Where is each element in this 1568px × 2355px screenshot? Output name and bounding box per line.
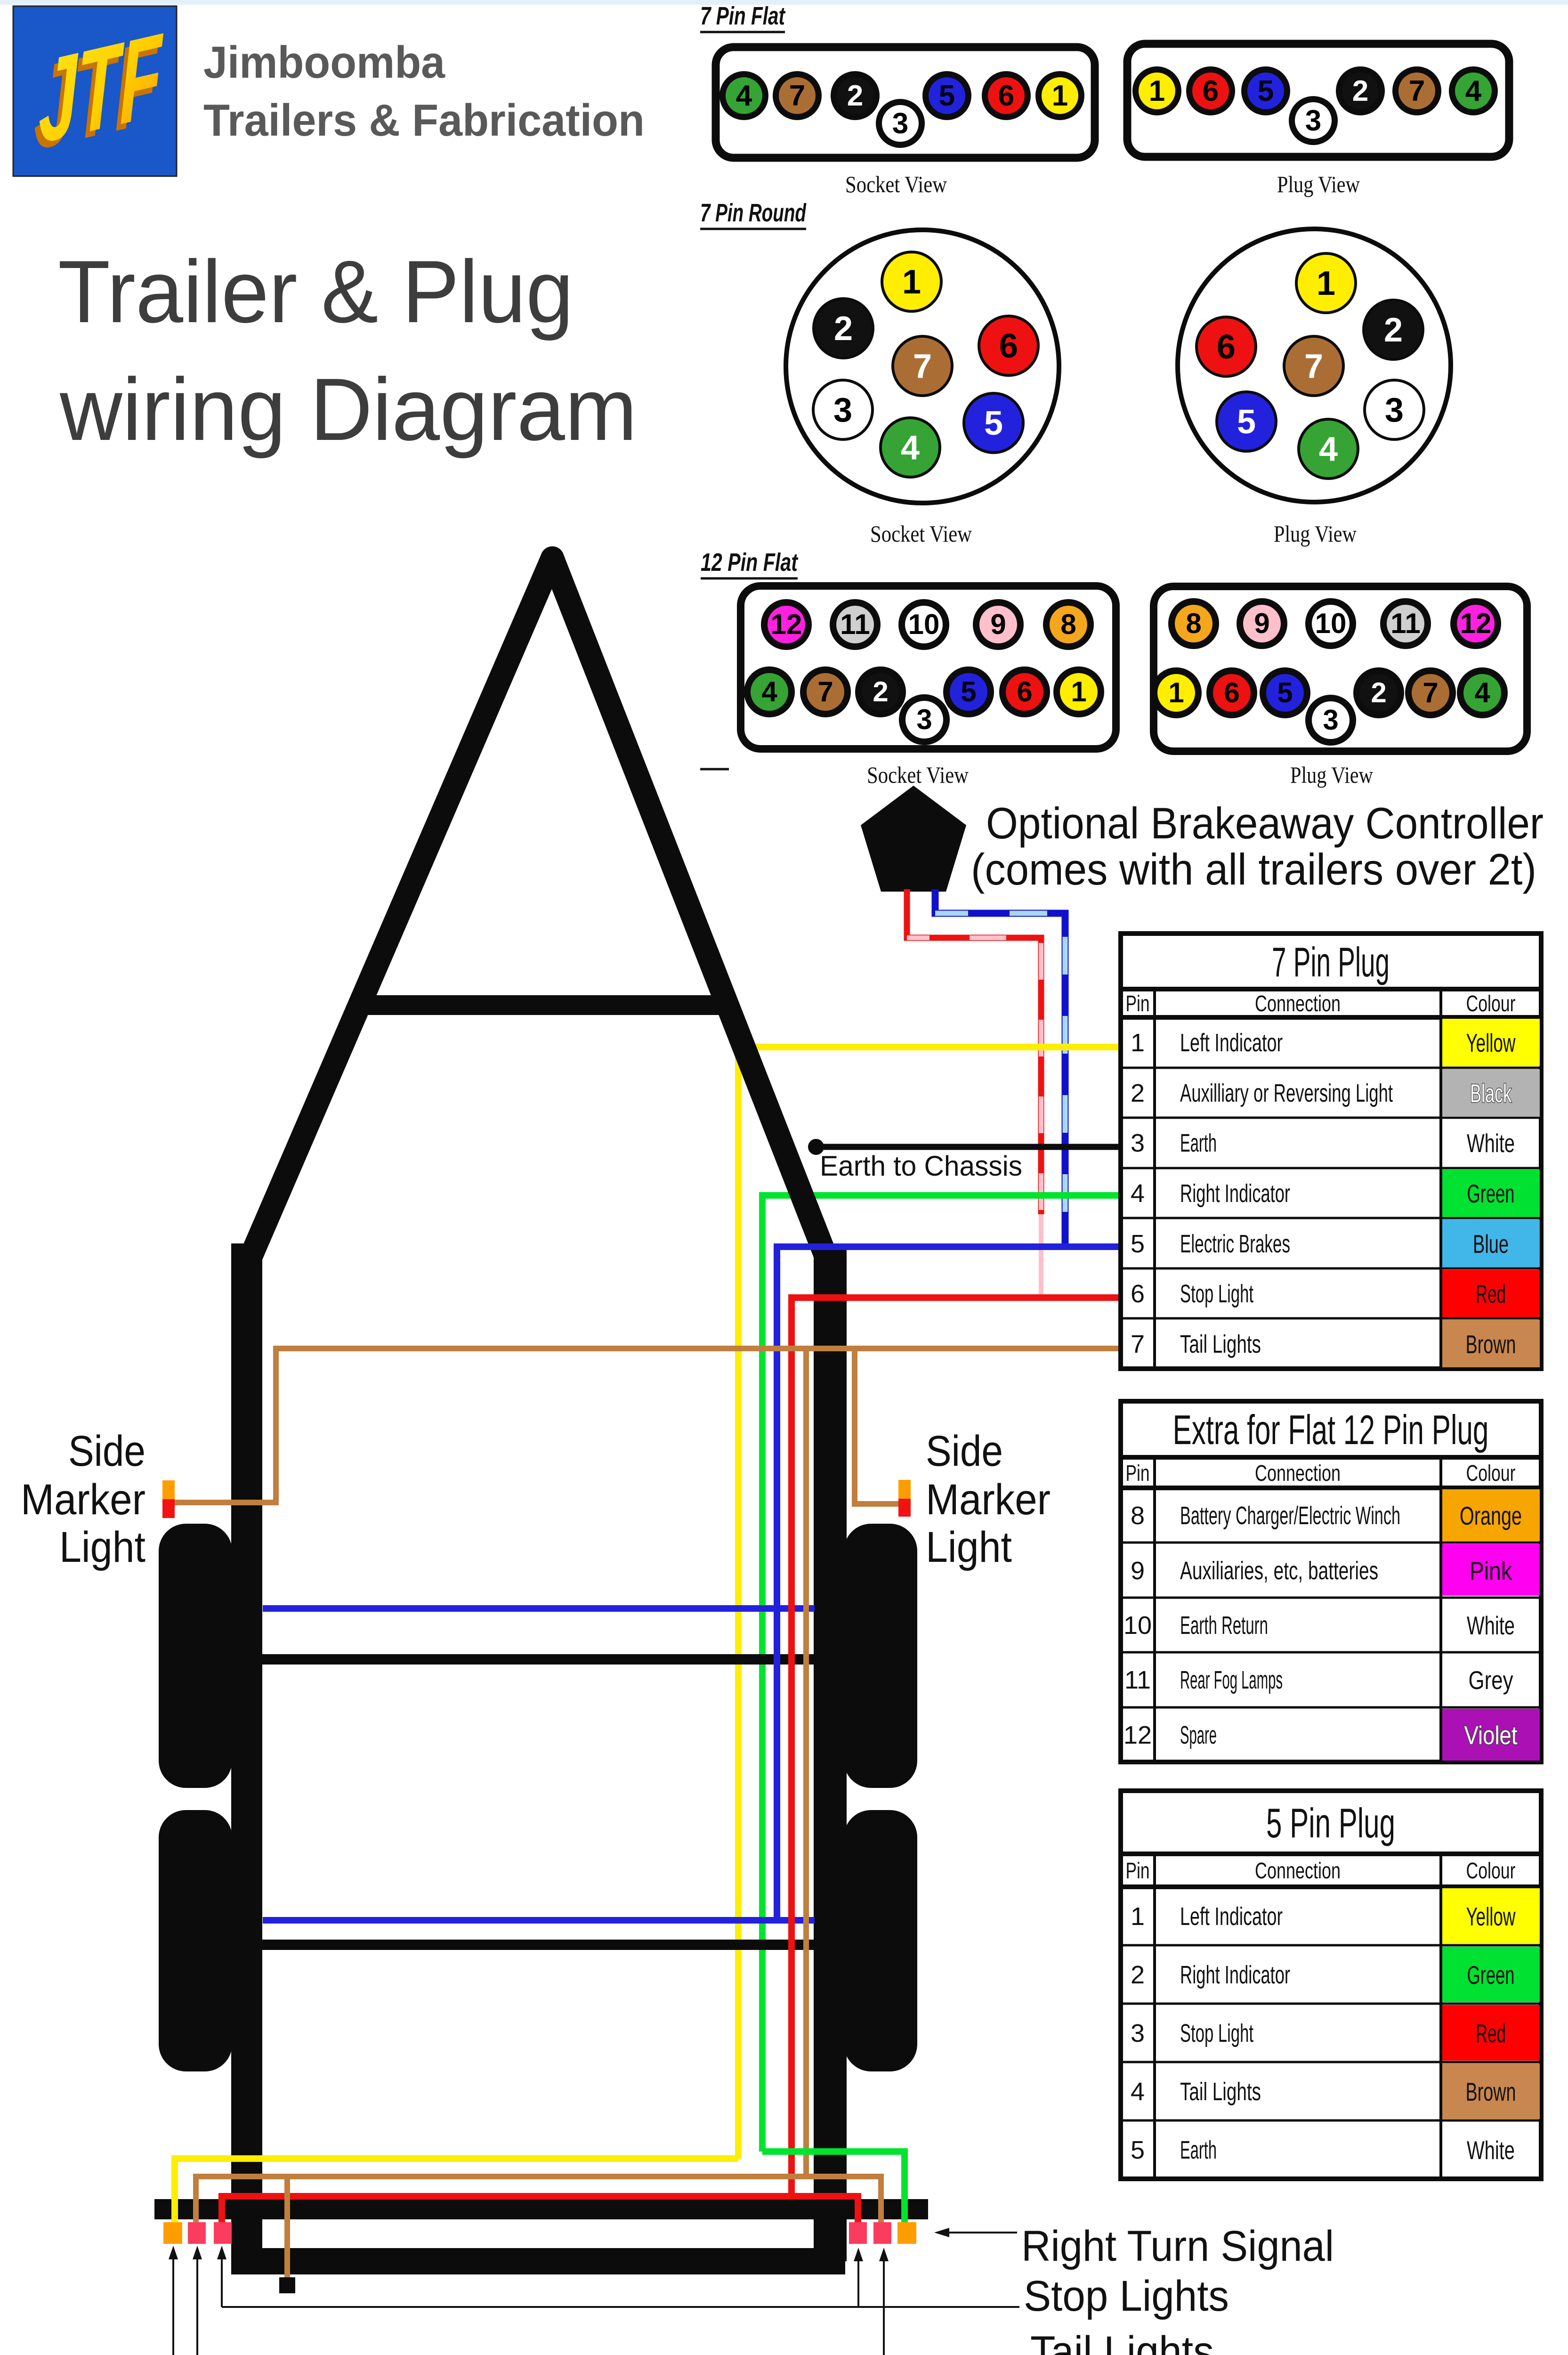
svg-text:Left Indicator: Left Indicator bbox=[1180, 1029, 1283, 1057]
svg-text:5: 5 bbox=[984, 405, 1003, 442]
svg-text:3: 3 bbox=[1323, 704, 1338, 736]
svg-text:Pin: Pin bbox=[1126, 991, 1150, 1016]
svg-text:4: 4 bbox=[1465, 75, 1482, 107]
svg-text:Green: Green bbox=[1467, 1960, 1515, 1990]
svg-text:Grey: Grey bbox=[1469, 1665, 1513, 1695]
svg-text:7 Pin Round: 7 Pin Round bbox=[700, 199, 807, 227]
svg-text:5: 5 bbox=[1237, 403, 1256, 441]
svg-text:Trailer & Plug: Trailer & Plug bbox=[58, 242, 574, 341]
svg-text:5: 5 bbox=[1277, 677, 1293, 708]
svg-text:Plug View: Plug View bbox=[1274, 520, 1357, 547]
svg-text:White: White bbox=[1467, 2136, 1515, 2165]
svg-text:Pin: Pin bbox=[1126, 1461, 1150, 1486]
svg-text:Earth: Earth bbox=[1180, 2136, 1217, 2164]
svg-text:7 Pin Plug: 7 Pin Plug bbox=[1272, 939, 1390, 985]
svg-text:7: 7 bbox=[1423, 677, 1438, 708]
svg-text:11: 11 bbox=[1390, 608, 1420, 639]
svg-text:Electric Brakes: Electric Brakes bbox=[1180, 1230, 1290, 1258]
svg-text:7: 7 bbox=[789, 80, 805, 112]
svg-text:3: 3 bbox=[833, 391, 852, 429]
svg-text:8: 8 bbox=[1186, 608, 1201, 639]
svg-text:Rear Fog Lamps: Rear Fog Lamps bbox=[1180, 1666, 1283, 1694]
svg-text:1: 1 bbox=[1149, 75, 1165, 107]
svg-text:Auxilliary or Reversing Light: Auxilliary or Reversing Light bbox=[1180, 1079, 1393, 1107]
svg-text:6: 6 bbox=[1017, 676, 1032, 707]
svg-text:10: 10 bbox=[1315, 608, 1347, 639]
svg-text:4: 4 bbox=[1319, 430, 1338, 468]
svg-text:3: 3 bbox=[1131, 1129, 1145, 1157]
svg-text:4: 4 bbox=[1131, 2078, 1145, 2106]
svg-text:Connection: Connection bbox=[1255, 991, 1341, 1016]
svg-text:Socket View: Socket View bbox=[870, 520, 972, 547]
svg-text:5: 5 bbox=[1131, 2136, 1145, 2164]
svg-text:Stop Light: Stop Light bbox=[1180, 1280, 1253, 1308]
svg-text:2: 2 bbox=[834, 310, 853, 348]
svg-text:Light: Light bbox=[926, 1523, 1012, 1571]
svg-text:1: 1 bbox=[1168, 677, 1184, 708]
svg-text:4: 4 bbox=[1131, 1179, 1145, 1208]
svg-text:Green: Green bbox=[1467, 1179, 1515, 1208]
svg-text:9: 9 bbox=[1254, 608, 1269, 639]
svg-text:2: 2 bbox=[1384, 311, 1403, 349]
svg-text:Plug View: Plug View bbox=[1277, 171, 1360, 197]
svg-text:Yellow: Yellow bbox=[1466, 1028, 1516, 1057]
svg-text:6: 6 bbox=[999, 327, 1018, 365]
svg-text:1: 1 bbox=[1071, 676, 1086, 707]
svg-text:Right Indicator: Right Indicator bbox=[1180, 1179, 1290, 1208]
svg-text:Red: Red bbox=[1476, 2019, 1506, 2048]
svg-text:Marker: Marker bbox=[926, 1476, 1051, 1524]
svg-text:7 Pin Flat: 7 Pin Flat bbox=[700, 2, 786, 30]
svg-text:Pin: Pin bbox=[1126, 1859, 1150, 1884]
svg-text:(comes with all trailers over: (comes with all trailers over 2t) bbox=[971, 845, 1536, 894]
svg-text:Optional Brakeaway Controller: Optional Brakeaway Controller bbox=[986, 798, 1544, 848]
svg-text:Connection: Connection bbox=[1255, 1461, 1341, 1486]
svg-text:4: 4 bbox=[901, 429, 920, 467]
svg-text:4: 4 bbox=[736, 80, 752, 112]
svg-text:Colour: Colour bbox=[1466, 991, 1516, 1016]
svg-text:2: 2 bbox=[873, 676, 888, 707]
svg-text:5: 5 bbox=[1131, 1230, 1145, 1258]
svg-text:1: 1 bbox=[902, 263, 921, 301]
svg-text:Blue: Blue bbox=[1473, 1229, 1509, 1259]
svg-text:2: 2 bbox=[847, 80, 863, 112]
svg-text:Stop Lights: Stop Lights bbox=[1024, 2272, 1229, 2320]
svg-text:1: 1 bbox=[1052, 80, 1068, 112]
svg-text:Socket View: Socket View bbox=[845, 171, 947, 197]
svg-text:Plug View: Plug View bbox=[1290, 762, 1373, 788]
svg-text:7: 7 bbox=[1131, 1330, 1145, 1358]
svg-text:7: 7 bbox=[1409, 75, 1425, 107]
svg-text:11: 11 bbox=[840, 609, 870, 640]
svg-text:wiring Diagram: wiring Diagram bbox=[59, 360, 637, 459]
svg-text:6: 6 bbox=[998, 80, 1014, 112]
svg-text:5: 5 bbox=[1258, 75, 1274, 107]
svg-text:6: 6 bbox=[1203, 75, 1219, 107]
svg-text:3: 3 bbox=[1385, 391, 1404, 429]
svg-text:7: 7 bbox=[817, 676, 833, 707]
svg-text:9: 9 bbox=[1131, 1557, 1145, 1585]
svg-text:Right Indicator: Right Indicator bbox=[1180, 1961, 1290, 1989]
svg-text:10: 10 bbox=[1123, 1611, 1152, 1640]
svg-text:2: 2 bbox=[1371, 677, 1386, 708]
svg-text:11: 11 bbox=[1124, 1666, 1151, 1694]
svg-text:Jimboomba: Jimboomba bbox=[203, 37, 445, 88]
svg-text:2: 2 bbox=[1352, 75, 1368, 107]
svg-text:Tail Lights: Tail Lights bbox=[1180, 2078, 1261, 2106]
svg-text:9: 9 bbox=[990, 609, 1006, 640]
svg-text:Stop Light: Stop Light bbox=[1180, 2019, 1253, 2047]
svg-text:Side: Side bbox=[926, 1427, 1003, 1475]
svg-text:Brown: Brown bbox=[1466, 1330, 1516, 1359]
svg-text:Tail Lights: Tail Lights bbox=[1030, 2328, 1214, 2355]
svg-text:Colour: Colour bbox=[1466, 1859, 1516, 1884]
svg-text:Violet: Violet bbox=[1464, 1721, 1518, 1750]
svg-text:5 Pin Plug: 5 Pin Plug bbox=[1266, 1800, 1395, 1846]
svg-text:6: 6 bbox=[1131, 1280, 1145, 1308]
svg-text:1: 1 bbox=[1131, 1902, 1145, 1931]
svg-text:3: 3 bbox=[1131, 2019, 1145, 2047]
svg-text:Battery Charger/Electric Winch: Battery Charger/Electric Winch bbox=[1180, 1502, 1400, 1530]
svg-text:Earth: Earth bbox=[1180, 1129, 1217, 1157]
svg-text:Connection: Connection bbox=[1255, 1859, 1341, 1884]
svg-text:12: 12 bbox=[771, 609, 802, 640]
svg-text:Socket View: Socket View bbox=[867, 762, 969, 788]
svg-text:12: 12 bbox=[1460, 608, 1492, 639]
svg-text:Brown: Brown bbox=[1466, 2077, 1516, 2106]
svg-text:Marker: Marker bbox=[21, 1476, 145, 1524]
svg-text:8: 8 bbox=[1060, 609, 1076, 640]
svg-text:7: 7 bbox=[1304, 348, 1323, 385]
svg-text:Right Turn Signal: Right Turn Signal bbox=[1021, 2222, 1334, 2270]
svg-text:7: 7 bbox=[913, 348, 932, 385]
svg-text:Left Indicator: Left Indicator bbox=[1180, 1902, 1283, 1931]
svg-text:Pink: Pink bbox=[1470, 1556, 1512, 1585]
svg-text:Spare: Spare bbox=[1180, 1721, 1217, 1749]
svg-text:1: 1 bbox=[1317, 265, 1335, 302]
svg-text:Auxiliaries, etc, batteries: Auxiliaries, etc, batteries bbox=[1180, 1557, 1378, 1585]
svg-text:Tail Lights: Tail Lights bbox=[1180, 1330, 1261, 1358]
svg-text:Orange: Orange bbox=[1460, 1501, 1522, 1530]
svg-text:1: 1 bbox=[1131, 1029, 1145, 1057]
svg-text:Light: Light bbox=[59, 1523, 145, 1571]
svg-text:10: 10 bbox=[908, 609, 940, 640]
svg-text:6: 6 bbox=[1217, 328, 1236, 366]
svg-text:3: 3 bbox=[892, 107, 908, 140]
svg-text:Red: Red bbox=[1476, 1279, 1506, 1308]
svg-text:8: 8 bbox=[1131, 1502, 1145, 1530]
svg-text:4: 4 bbox=[1474, 677, 1490, 708]
svg-text:5: 5 bbox=[939, 80, 955, 112]
svg-text:Trailers & Fabrication: Trailers & Fabrication bbox=[203, 95, 645, 146]
svg-text:12 Pin Flat: 12 Pin Flat bbox=[701, 548, 799, 577]
svg-text:Extra for Flat 12 Pin Plug: Extra for Flat 12 Pin Plug bbox=[1173, 1406, 1489, 1453]
svg-text:2: 2 bbox=[1131, 1079, 1145, 1107]
svg-text:Colour: Colour bbox=[1466, 1461, 1516, 1486]
svg-text:Black: Black bbox=[1470, 1079, 1511, 1108]
svg-text:3: 3 bbox=[916, 704, 932, 735]
svg-text:5: 5 bbox=[961, 676, 976, 707]
svg-text:12: 12 bbox=[1123, 1721, 1152, 1749]
svg-text:6: 6 bbox=[1224, 677, 1239, 708]
svg-text:3: 3 bbox=[1305, 105, 1321, 137]
svg-text:Side: Side bbox=[68, 1427, 145, 1475]
svg-text:Earth Return: Earth Return bbox=[1180, 1611, 1268, 1640]
svg-text:White: White bbox=[1467, 1129, 1515, 1158]
svg-text:Yellow: Yellow bbox=[1466, 1902, 1516, 1931]
svg-text:Earth to Chassis: Earth to Chassis bbox=[820, 1150, 1022, 1182]
svg-text:White: White bbox=[1467, 1611, 1515, 1640]
svg-text:4: 4 bbox=[761, 676, 777, 707]
svg-text:2: 2 bbox=[1131, 1961, 1145, 1989]
